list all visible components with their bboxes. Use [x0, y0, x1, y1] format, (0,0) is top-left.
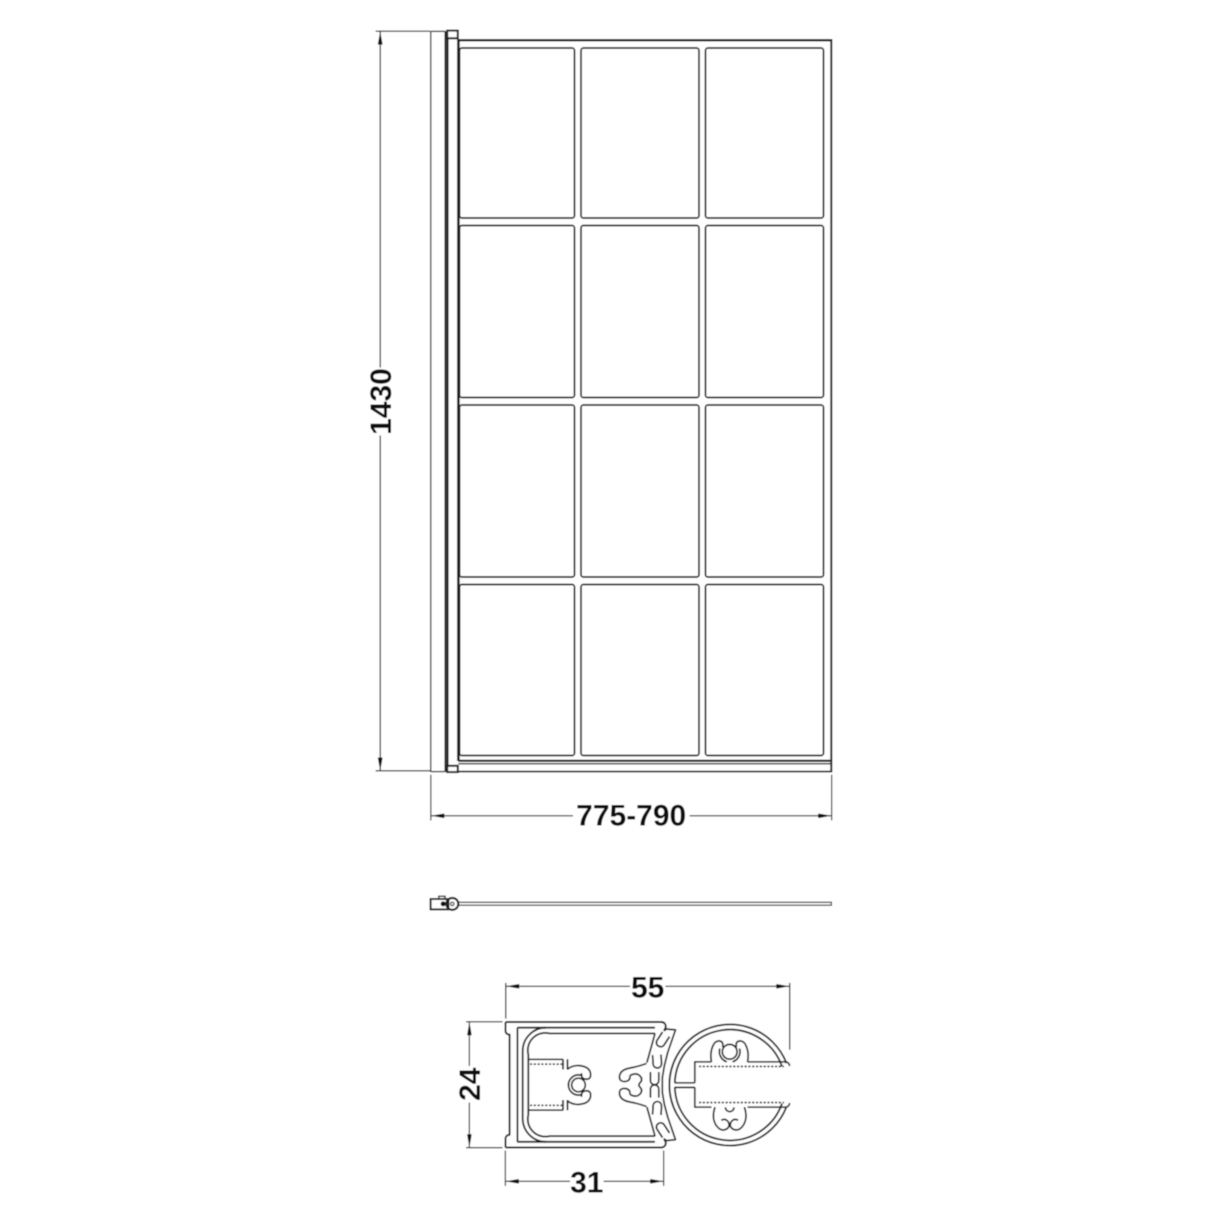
svg-text:24: 24 — [454, 1067, 487, 1101]
svg-text:775-790: 775-790 — [576, 800, 686, 833]
svg-text:55: 55 — [631, 972, 664, 1005]
svg-text:31: 31 — [570, 1166, 603, 1199]
svg-text:1430: 1430 — [365, 368, 398, 435]
